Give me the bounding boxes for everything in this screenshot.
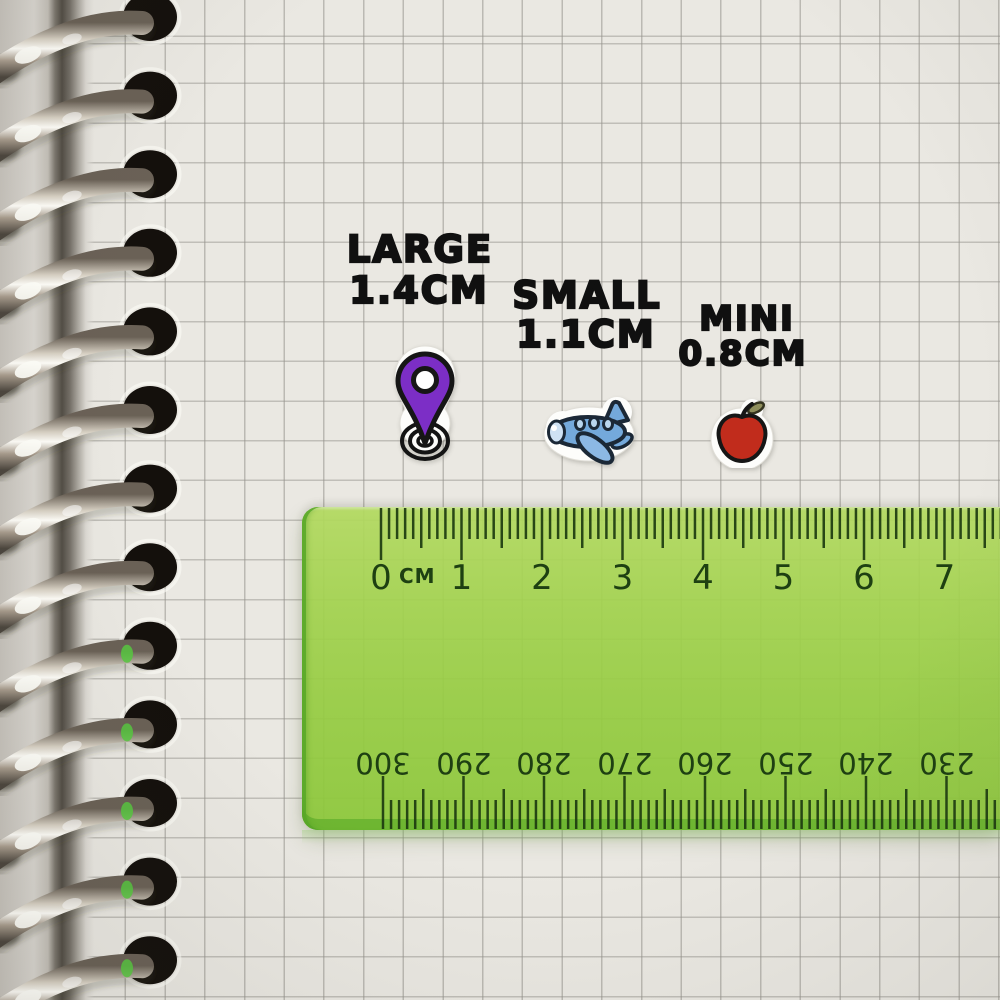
- label-large-size: 1.4CM: [349, 272, 489, 309]
- airplane-sticker: [543, 396, 640, 466]
- ruler-cm-number: 1: [451, 561, 473, 595]
- ruler-mm-number: 300: [355, 748, 410, 777]
- ruler-cm-number: 5: [773, 561, 795, 595]
- binder-ring: [0, 0, 180, 83]
- ruler-cm-number: 4: [692, 561, 714, 595]
- ruler-mm-number: 290: [436, 748, 491, 777]
- ruler-mm-number: 240: [838, 748, 893, 777]
- spiral-binding: [0, 0, 210, 1000]
- notebook-photo: LARGE 1.4CM SMALL 1.1CM MINI 0.8CM: [0, 0, 1000, 1000]
- label-small-title: SMALL: [512, 277, 661, 314]
- location-pin-sticker: [393, 344, 457, 468]
- location-pin-icon: [398, 354, 452, 459]
- binder-ring: [0, 933, 180, 1000]
- ruler-unit-label: CM: [399, 566, 436, 586]
- ruler-cm-number: 6: [853, 561, 875, 595]
- ruler-cm-number: 0: [370, 561, 392, 595]
- ruler-cm-number: 3: [612, 561, 634, 595]
- ruler-mm-number: 230: [919, 748, 974, 777]
- label-large-title: LARGE: [347, 231, 493, 268]
- label-mini-size: 0.8CM: [678, 337, 807, 371]
- apple-sticker: [706, 398, 778, 468]
- ruler-mm-number: 260: [677, 748, 732, 777]
- ruler-bottom-ticks: [302, 507, 1000, 830]
- ruler-mm-number: 270: [597, 748, 652, 777]
- ruler-cm-number: 7: [934, 561, 956, 595]
- ruler-mm-number: 250: [758, 748, 813, 777]
- label-small-size: 1.1CM: [516, 316, 656, 353]
- ruler-mm-number: 280: [516, 748, 571, 777]
- label-mini-title: MINI: [699, 302, 795, 336]
- ruler-cm-number: 2: [531, 561, 553, 595]
- ruler: 01234567 CM 300290280270260250240230: [302, 507, 1000, 830]
